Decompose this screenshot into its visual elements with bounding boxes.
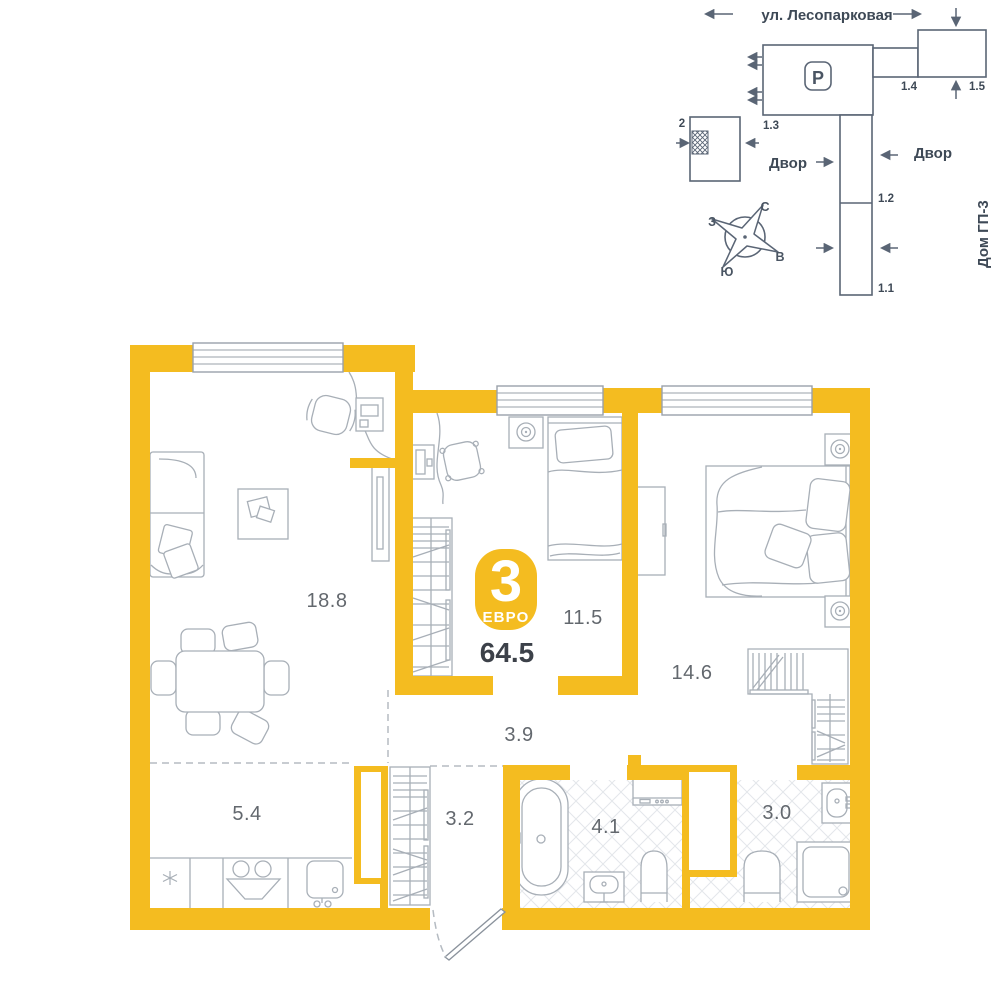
- badge-layout-type: ЕВРО: [482, 609, 529, 626]
- building-1-5: [918, 30, 986, 77]
- tv-stand: [372, 464, 389, 561]
- nightstand: [825, 434, 854, 465]
- room-area-label-bedroom2: 11.5: [563, 607, 602, 629]
- nightstand: [509, 417, 543, 448]
- neighbor-house-label: Дом ГП-3: [975, 200, 992, 268]
- ensuite-sink: [822, 783, 852, 823]
- shower-tray: [797, 842, 854, 902]
- building-1-4-label: 1.4: [901, 81, 918, 93]
- building-1-3-label: 1.3: [763, 120, 779, 132]
- total-area-label: 64.5: [480, 637, 535, 668]
- building-1-4: [873, 48, 918, 77]
- compass-east-label: В: [775, 250, 784, 264]
- toilet: [641, 851, 667, 902]
- room-area-label-bathroom: 4.1: [591, 816, 620, 838]
- building-1-2-label: 1.2: [878, 193, 894, 205]
- street-label: ул. Лесопарковая: [761, 7, 892, 24]
- built-in-cabinet: [354, 766, 388, 908]
- bedroom-master: [637, 434, 854, 764]
- office-chair: [303, 392, 358, 439]
- desk: [412, 413, 443, 504]
- dresser: [637, 487, 666, 575]
- door-swing-arc: [433, 910, 446, 957]
- building-1-2-1-1: [840, 115, 872, 295]
- bedroom-small-window: [497, 386, 603, 415]
- compass-south-label: Ю: [721, 265, 734, 279]
- living-room-window: [193, 343, 343, 372]
- door-leaf: [445, 909, 505, 960]
- dining-table: [151, 621, 289, 746]
- wardrobe: [390, 767, 430, 905]
- walk-in-closet: [748, 649, 848, 764]
- site-plan: ул. Лесопарковая P 1.3 1.4 1.5 1.2 1.1 2: [676, 7, 992, 295]
- yard-label-right: Двор: [914, 145, 952, 162]
- bathtub: [515, 779, 568, 895]
- yard-label-left: Двор: [769, 155, 807, 172]
- bathroom-sink: [584, 872, 624, 902]
- ensuite-toilet: [744, 851, 780, 902]
- entry-door: [433, 909, 505, 960]
- building-1-5-label: 1.5: [969, 81, 986, 93]
- fridge-snowflake-icon: [163, 871, 177, 885]
- floor-plan: 18.8 11.5 14.6 3.9 5.4 3.2 4.1 3.0 3 ЕВР…: [130, 343, 870, 960]
- kitchen: [150, 858, 352, 908]
- building-1-1-label: 1.1: [878, 283, 895, 295]
- room-area-label-ensuite: 3.0: [762, 802, 791, 824]
- office-chair: [439, 439, 485, 482]
- compass-icon: [712, 205, 778, 267]
- wardrobe: [410, 518, 452, 676]
- coffee-table: [238, 489, 288, 539]
- parking-letter: P: [812, 68, 824, 88]
- bedroom-master-window: [662, 386, 812, 415]
- kitchen-sink: [307, 861, 343, 907]
- living-room: [150, 372, 392, 746]
- bed-single: [548, 417, 622, 560]
- room-area-label-hall: 3.9: [504, 724, 533, 746]
- unit-location-hatch: [692, 131, 708, 154]
- room-area-label-living: 18.8: [307, 590, 348, 612]
- room-count-badge: 3 ЕВРО: [475, 549, 537, 630]
- bed-double: [706, 466, 851, 597]
- entry-hall: [390, 767, 430, 905]
- building-2-label: 2: [679, 118, 685, 130]
- compass-north-label: С: [760, 200, 769, 214]
- floorplan-page: ул. Лесопарковая P 1.3 1.4 1.5 1.2 1.1 2: [0, 0, 1000, 1000]
- sofa: [150, 452, 204, 579]
- nightstand: [825, 596, 854, 627]
- badge-rooms-number: 3: [490, 549, 522, 614]
- stove: [227, 861, 280, 899]
- compass-west-label: З: [708, 215, 716, 229]
- room-area-label-kitchen: 5.4: [232, 803, 261, 825]
- duct-shaft: [682, 765, 737, 877]
- parking-entrance-arrows: [749, 57, 762, 100]
- floorplan-canvas: ул. Лесопарковая P 1.3 1.4 1.5 1.2 1.1 2: [0, 0, 1000, 1000]
- room-area-label-bedroom1: 14.6: [672, 662, 713, 684]
- room-area-label-entry: 3.2: [445, 808, 474, 830]
